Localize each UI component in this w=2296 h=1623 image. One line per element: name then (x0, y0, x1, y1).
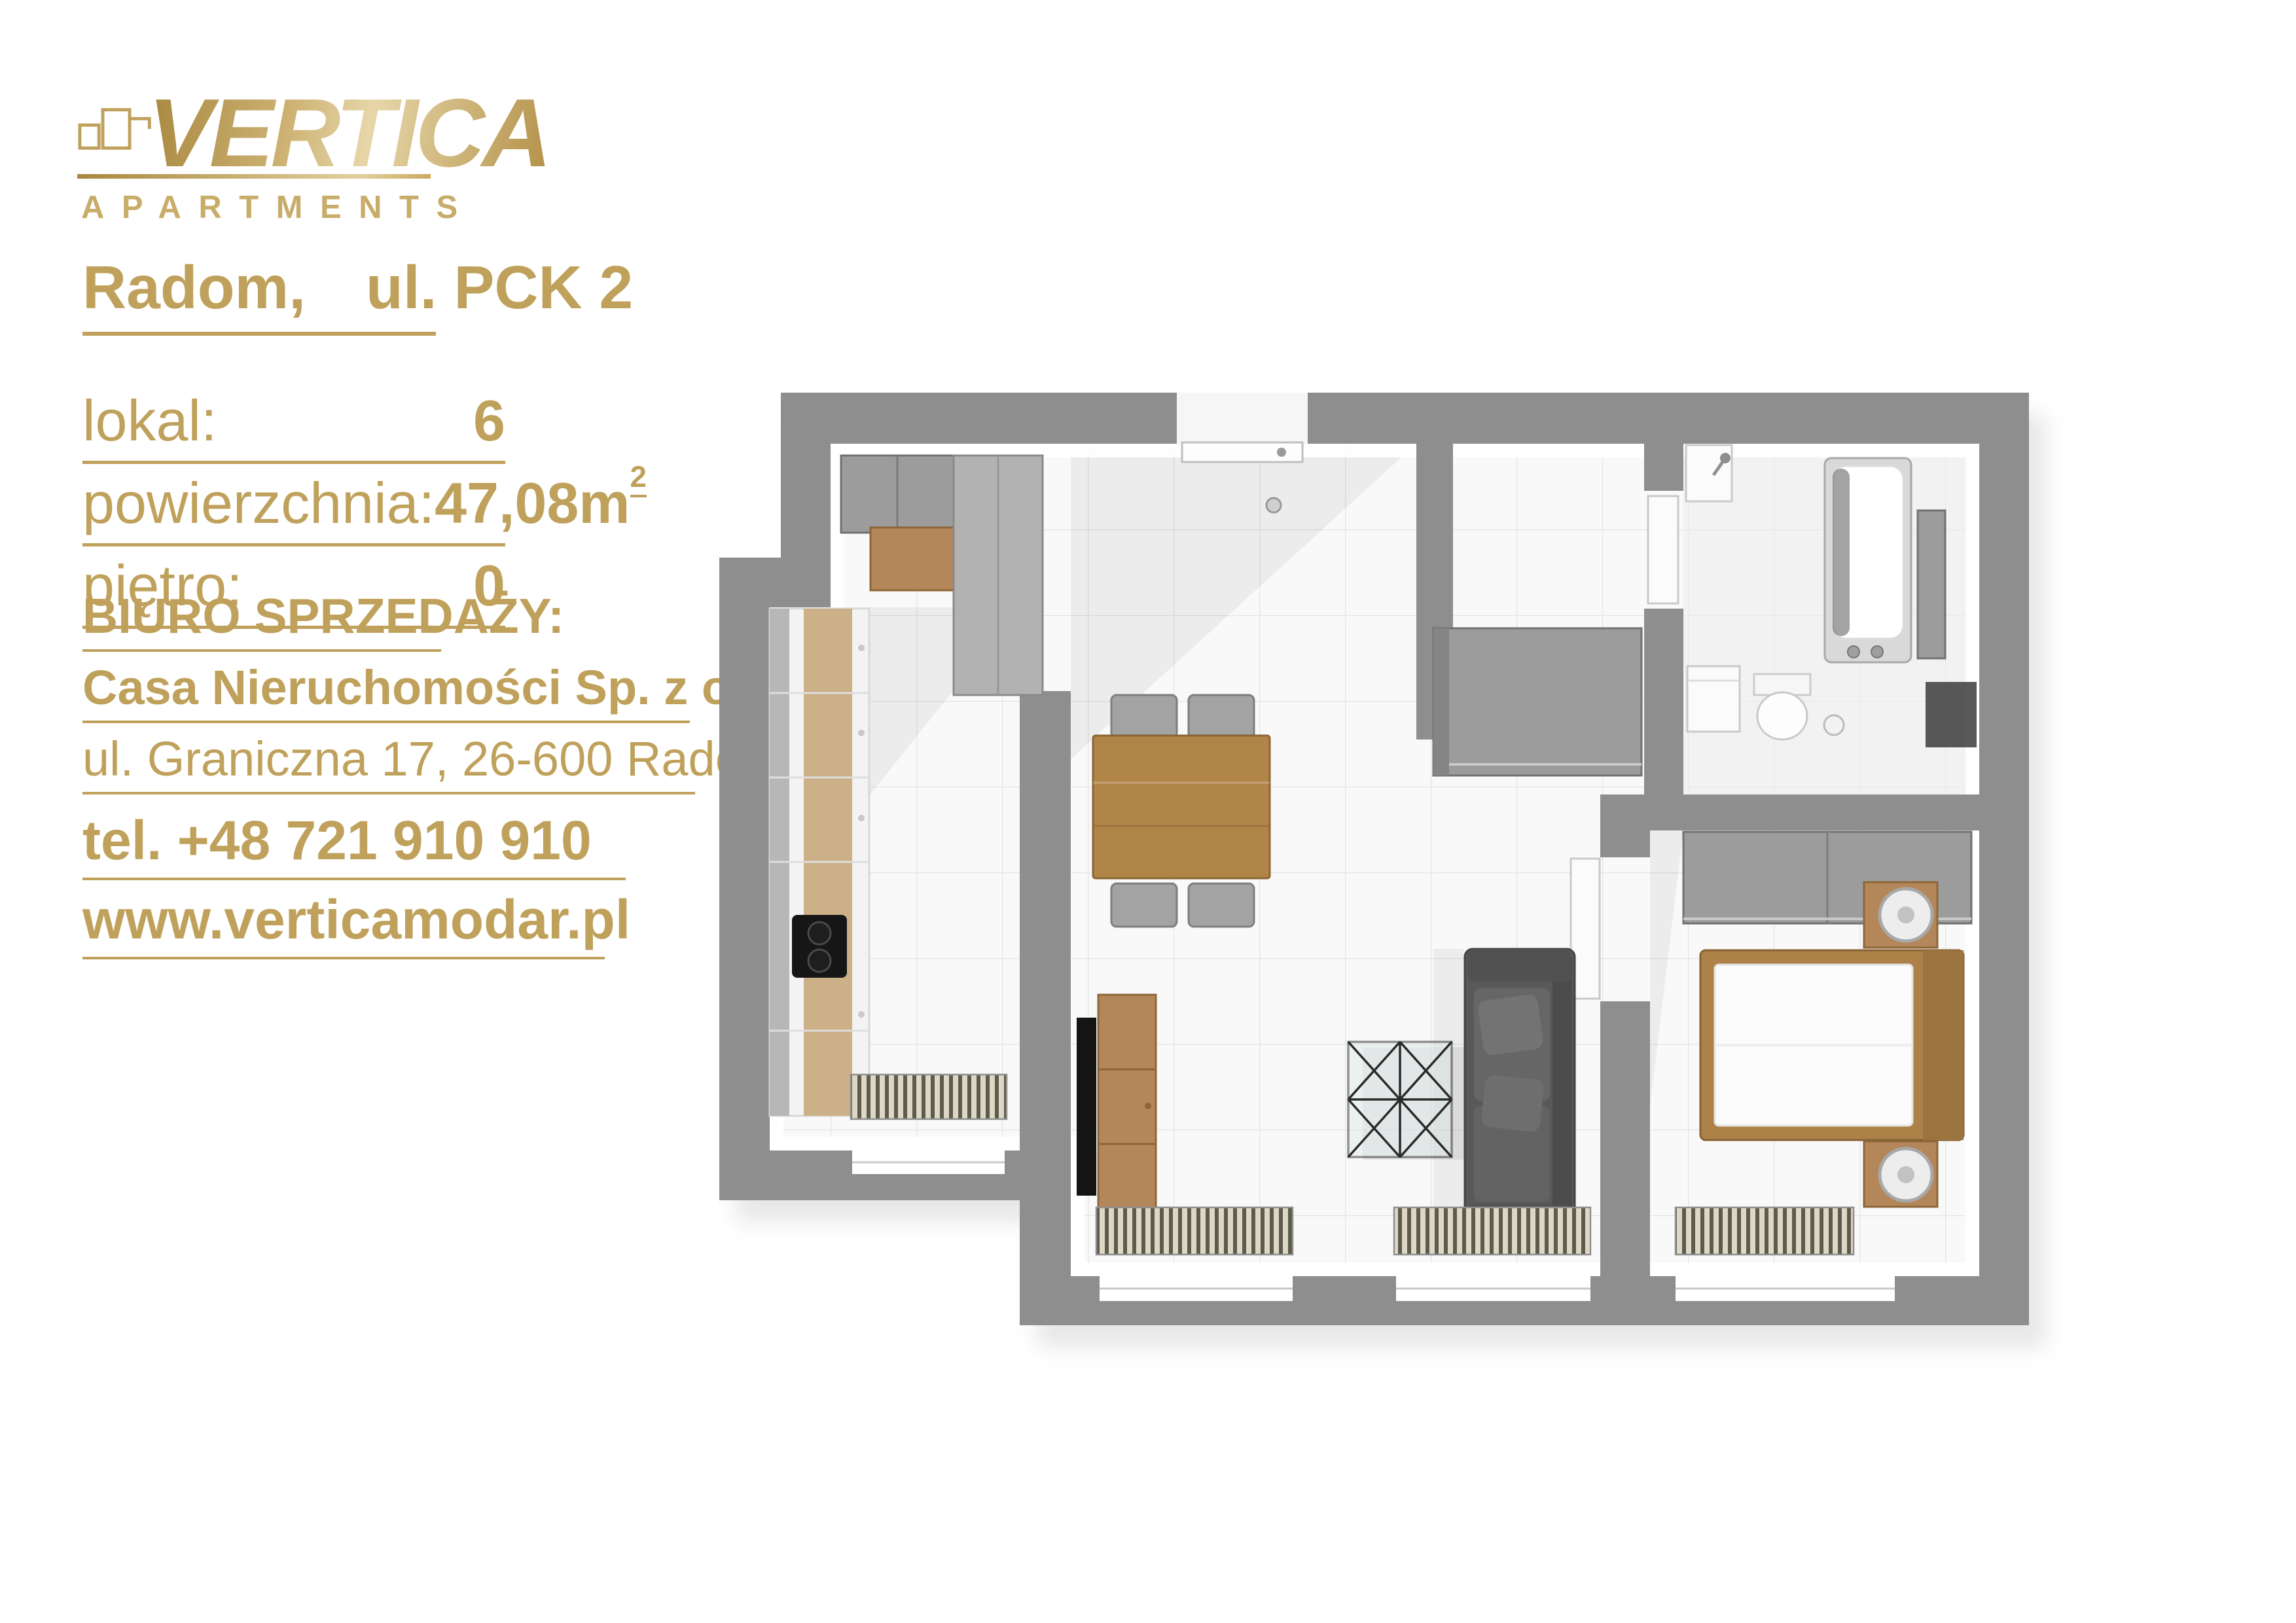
nightstand-bottom (1864, 1141, 1937, 1207)
brand-tagline: APARTMENTS (77, 189, 548, 226)
toilet (1754, 674, 1810, 740)
sales-office-address: ul. Graniczna 17, 26-600 Radom (82, 731, 695, 794)
listing-street: ul. PCK 2 (366, 253, 633, 323)
bathtub-tap (1871, 646, 1883, 658)
bathroom-wall-cabinet (1918, 510, 1945, 658)
bedroom-left-wall-lower (1600, 1001, 1650, 1276)
phone-number: +48 721 910 910 (177, 810, 592, 871)
sales-office-company: Casa Nieruchomości Sp. z o. o. (82, 660, 690, 723)
brand-name: VERTICA (148, 94, 548, 173)
radiator-living-right (1394, 1207, 1590, 1255)
detail-label: lokal: (82, 387, 217, 454)
logo: VERTICA APARTMENTS (77, 84, 548, 226)
detail-value: 6 (473, 387, 505, 454)
door-handle (1277, 448, 1286, 457)
phone-label: tel. (82, 810, 162, 871)
radiator-bedroom (1676, 1207, 1854, 1255)
cabinet-handle (858, 645, 865, 651)
detail-row-area: powierzchnia: 47,08m2 (82, 470, 505, 546)
bathtub-shading (1833, 469, 1850, 636)
building-tall-outline (103, 110, 130, 149)
outer-wall-upper-left (781, 393, 831, 607)
bathroom-wall-lower (1644, 609, 1683, 794)
cooktop-burner (808, 950, 831, 972)
bathtub-tap (1848, 646, 1859, 658)
listing-city: Radom, (82, 253, 306, 323)
outer-wall-nook-left (719, 558, 770, 1200)
cabinet-handle (858, 815, 865, 821)
hall-cabinet (1433, 628, 1641, 776)
bedroom-top-wall (1600, 794, 1979, 830)
wall-niche (1926, 682, 1977, 747)
listing-title: Radom, ul. PCK 2 (82, 253, 436, 336)
entrance-door-opening (1177, 393, 1308, 444)
building-partial-outline (130, 118, 149, 129)
bathroom-wall-upper (1644, 444, 1683, 491)
dining-table (1093, 736, 1270, 878)
sales-office-block: BIURO SPRZEDAŻY: Casa Nieruchomości Sp. … (82, 588, 695, 967)
hall-cabinet-side (1433, 628, 1449, 776)
nightstand-top (1864, 882, 1937, 948)
cabinet-handle (1145, 1103, 1151, 1109)
dining-chair (1111, 695, 1177, 738)
logo-row: VERTICA (77, 84, 548, 173)
bathtub (1825, 458, 1911, 662)
outer-wall-right (1979, 393, 2029, 1325)
detail-label: powierzchnia: (82, 470, 435, 537)
dining-chair (1111, 883, 1177, 927)
radiator-kitchen (851, 1075, 1007, 1119)
tv (1077, 1018, 1096, 1196)
lamp-center (1897, 906, 1914, 923)
dining-chair (1189, 883, 1254, 927)
bed-headboard (1923, 950, 1964, 1140)
radiator-living-left (1096, 1207, 1293, 1255)
sofa-armrest (1467, 949, 1571, 982)
cabinet-handle (858, 1011, 865, 1018)
bed (1700, 950, 1964, 1140)
detail-row-unit: lokal: 6 (82, 387, 505, 464)
sofa (1465, 949, 1575, 1237)
toilet-paper-holder (1824, 715, 1844, 735)
kitchen-counter-wood (870, 527, 954, 590)
dining-chair (1189, 695, 1254, 738)
sofa-backrest (1552, 954, 1572, 1232)
sales-office-phone: tel. +48 721 910 910 (82, 809, 626, 880)
cabinet-handle (858, 730, 865, 736)
lamp-center (1897, 1166, 1914, 1183)
coffee-table (1348, 1042, 1467, 1160)
floorplan-render (655, 353, 2094, 1433)
bedroom-left-wall-upper (1600, 794, 1650, 857)
flyer-page: { "theme": { "gold": "#bfa15c", "gold-li… (0, 0, 2296, 1623)
kitchen-counter-run (770, 609, 869, 1116)
kitchen-divider-wall (1020, 691, 1071, 1150)
sales-office-heading: BIURO SPRZEDAŻY: (82, 588, 441, 652)
buildings-icon (77, 84, 154, 173)
hall (1433, 628, 1641, 776)
detail-value: 47,08m2 (435, 470, 647, 537)
ceiling-lamp (1266, 498, 1281, 512)
sofa-pillow (1480, 1075, 1545, 1133)
washing-machine (1687, 666, 1740, 732)
building-small-outline (80, 125, 99, 148)
outer-wall-step (719, 558, 781, 607)
cooktop-burner (808, 922, 831, 944)
toilet-bowl (1757, 692, 1807, 740)
sales-office-website: www.verticamodar.pl (82, 888, 605, 959)
bathroom-door-leaf (1648, 496, 1678, 603)
sofa-pillow (1477, 993, 1545, 1056)
outer-wall-top (781, 393, 2029, 444)
